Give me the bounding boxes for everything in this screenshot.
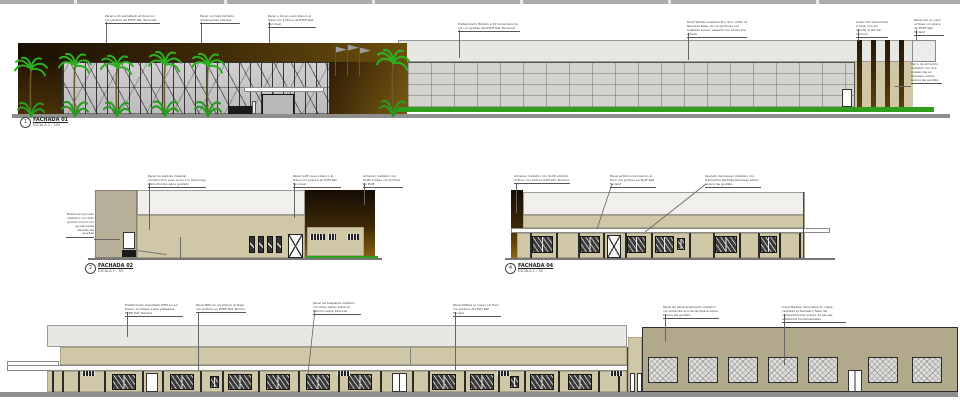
window [568, 374, 592, 390]
tan-infill-panel [855, 62, 913, 107]
facade-04-label: 4 FACHADA 04 ESCALA 1 : 50 [505, 263, 553, 274]
annotation-note: Panel de almacenamiento metalico con bot… [663, 306, 719, 319]
annotation-note: Panel SolE nuevo blanco al Daso con pint… [293, 175, 341, 188]
palm-tree [191, 52, 225, 118]
flag-pole [335, 46, 336, 76]
facade-01-label: 1 FACHADA 01 ESCALA 1 : 100 [20, 117, 68, 128]
hatched-window [648, 357, 678, 383]
flag-pole [347, 44, 348, 76]
slit-window [276, 236, 282, 253]
border-gap [74, 0, 77, 4]
wall-post [558, 371, 560, 392]
flag-pole [359, 47, 360, 76]
parapet-band [398, 40, 918, 62]
border-gap [224, 0, 227, 4]
ground-line [505, 258, 835, 260]
palm-tree [58, 52, 92, 118]
wall-post [556, 233, 558, 258]
wall-post [598, 371, 600, 392]
palm-tree [376, 48, 410, 118]
annotation-note: Panel w/OLS lucen blanco al fluor con pi… [610, 175, 656, 188]
entrance-canopy [244, 87, 324, 92]
facade-02-scale: ESCALA 1 : 50 [98, 269, 133, 273]
facade-04-number-badge: 4 [505, 263, 516, 274]
annotation-note: Panel de piedras material construccion p… [148, 175, 206, 188]
beige-inset-panel [307, 227, 364, 256]
wall-post [104, 371, 106, 392]
annotation-note: Almacen metalico con SollD a Daso con pi… [363, 175, 403, 188]
fascia-joint-line [410, 347, 411, 365]
double-door [848, 370, 862, 392]
wall-post [142, 371, 144, 392]
hatched-window [868, 357, 898, 383]
leader-line [516, 183, 517, 213]
wall-post [380, 371, 382, 392]
brown-pillar [871, 40, 876, 107]
small-window [510, 376, 519, 388]
roof-panel-outline [912, 40, 936, 62]
wall-post [758, 233, 760, 258]
wall-post [578, 233, 580, 258]
slit-window [267, 236, 273, 253]
wall-post [78, 371, 80, 392]
hatched-window [768, 357, 798, 383]
facade-04-scale: ESCALA 1 : 50 [518, 269, 553, 273]
leader-line [455, 312, 456, 370]
beige-fascia [60, 347, 627, 365]
wall-post [799, 233, 801, 258]
annotation-note: Acero C/S estructural a Clein con sol ac… [856, 21, 888, 38]
strip-window [328, 234, 336, 240]
annotation-note: Panel con tela fachada dimensiones vidri… [200, 15, 240, 24]
window [306, 374, 330, 390]
annotation-note: Almacen metalico con SollD emitido al fl… [514, 175, 570, 184]
wall-post [603, 233, 605, 258]
narrow-door [630, 373, 635, 392]
window [266, 374, 290, 390]
wall-post [412, 371, 414, 392]
wall-post [200, 371, 202, 392]
wall-post [713, 233, 715, 258]
beige-fascia [523, 215, 805, 228]
parapet-band [47, 325, 627, 347]
small-window [210, 376, 219, 388]
window [580, 236, 600, 253]
hatched-window [912, 357, 942, 383]
window [715, 236, 737, 253]
wall-post [52, 371, 54, 392]
slit-window [249, 236, 255, 253]
wall-post [625, 233, 627, 258]
palm-tree [100, 54, 134, 118]
leader-line [198, 312, 199, 370]
signage-strip [497, 371, 510, 376]
palm-tree [148, 50, 182, 118]
wall-post [739, 233, 741, 258]
concrete-block-wall [407, 62, 855, 108]
wall-post [779, 233, 781, 258]
wall-post [162, 371, 164, 392]
window [655, 236, 674, 253]
leader-line [895, 86, 911, 87]
right-edge-line [803, 192, 804, 258]
entry-door [146, 373, 158, 392]
annotation-note: Panel a 24 esmaltado al Duracon con pint… [105, 15, 160, 24]
border-gap [816, 0, 819, 4]
window [348, 374, 372, 390]
window [112, 374, 136, 390]
double-door [392, 373, 407, 392]
annotation-note: Prefabricado Modelo a 24 tonos blancos s… [458, 23, 520, 32]
wall-post [258, 371, 260, 392]
leader-line [459, 30, 460, 58]
slit-window [258, 236, 264, 253]
leader-line [106, 22, 107, 43]
leader-line [149, 183, 150, 230]
wall-post [222, 371, 224, 392]
annotation-note: Copa Madera decorativa Sr. Clase cantida… [782, 306, 846, 323]
hatched-window [688, 357, 718, 383]
annotation-note: Panel de traspasos metalico con fotos va… [313, 302, 361, 315]
annotation-note: Panel a/C en vano al Daso con placa de P… [914, 19, 944, 36]
annotation-note: Panel NPQ en sol blanco al Daso con pint… [196, 304, 246, 313]
wall-post [689, 233, 691, 258]
service-door [842, 89, 852, 107]
wall-post [298, 371, 300, 392]
brown-pillar [857, 40, 862, 107]
wall-post [428, 371, 430, 392]
door-base-block [122, 250, 136, 257]
annotation-note: Puerta en proceso metalico con friso gul… [66, 213, 94, 238]
window [228, 374, 252, 390]
upper-white-band [523, 192, 805, 215]
person-figure [252, 101, 256, 114]
upper-white-band [137, 190, 305, 215]
annotation-note: Aparato de plasayo metalico con trascent… [705, 175, 761, 188]
glazed-door [288, 234, 303, 258]
window [432, 374, 456, 390]
palm-tree [14, 56, 48, 118]
window [530, 374, 554, 390]
signage-strip [610, 371, 623, 376]
window [470, 374, 494, 390]
drawing-canvas: Panel a 24 esmaltado al Duracon con pint… [0, 0, 960, 400]
ground-line [88, 258, 382, 260]
annotation-note: Road Wallter Acabado B+/ Son combi al Na… [687, 21, 747, 38]
small-door [123, 232, 135, 249]
annotation-note: Panel a 24 en vano blanco al Daso con pi… [268, 15, 316, 28]
hatched-window [808, 357, 838, 383]
annotation-note: Prefabricado ensoldado NTM en sol blanco… [125, 304, 183, 317]
brown-pillar [899, 40, 904, 107]
glazed-door [607, 235, 621, 258]
strip-window [347, 234, 359, 240]
wall-post [62, 371, 64, 392]
facade-02-label: 2 FACHADA 02 ESCALA 1 : 50 [85, 263, 133, 274]
hatched-window [728, 357, 758, 383]
window [532, 236, 553, 253]
wall-post [464, 371, 466, 392]
ground-line [0, 392, 958, 397]
facade-01-number-badge: 1 [20, 117, 31, 128]
facade-01-scale: ESCALA 1 : 100 [33, 123, 68, 127]
signage-strip [337, 371, 350, 376]
annotation-note: Panel M/Nica al nuevo sol fluor con pint… [453, 304, 501, 317]
hedge-strip [398, 107, 934, 112]
border-gap [520, 0, 523, 4]
wall-post [651, 233, 653, 258]
window [627, 236, 646, 253]
small-window [677, 238, 685, 250]
annotation-note: Tarco de alimento metalico con dos prese… [911, 63, 942, 84]
signage-strip [82, 371, 95, 376]
border-gap [372, 0, 375, 4]
strip-window [310, 234, 325, 240]
leader-line [94, 239, 120, 240]
brown-pillar [885, 40, 890, 107]
window [760, 236, 777, 253]
facade-02-number-badge: 2 [85, 263, 96, 274]
leader-line [294, 183, 295, 218]
leader-line [201, 22, 202, 43]
wall-post [524, 371, 526, 392]
window [170, 374, 194, 390]
wall-joint-line [180, 237, 181, 258]
wall-post [530, 233, 532, 258]
border-gap [668, 0, 671, 4]
